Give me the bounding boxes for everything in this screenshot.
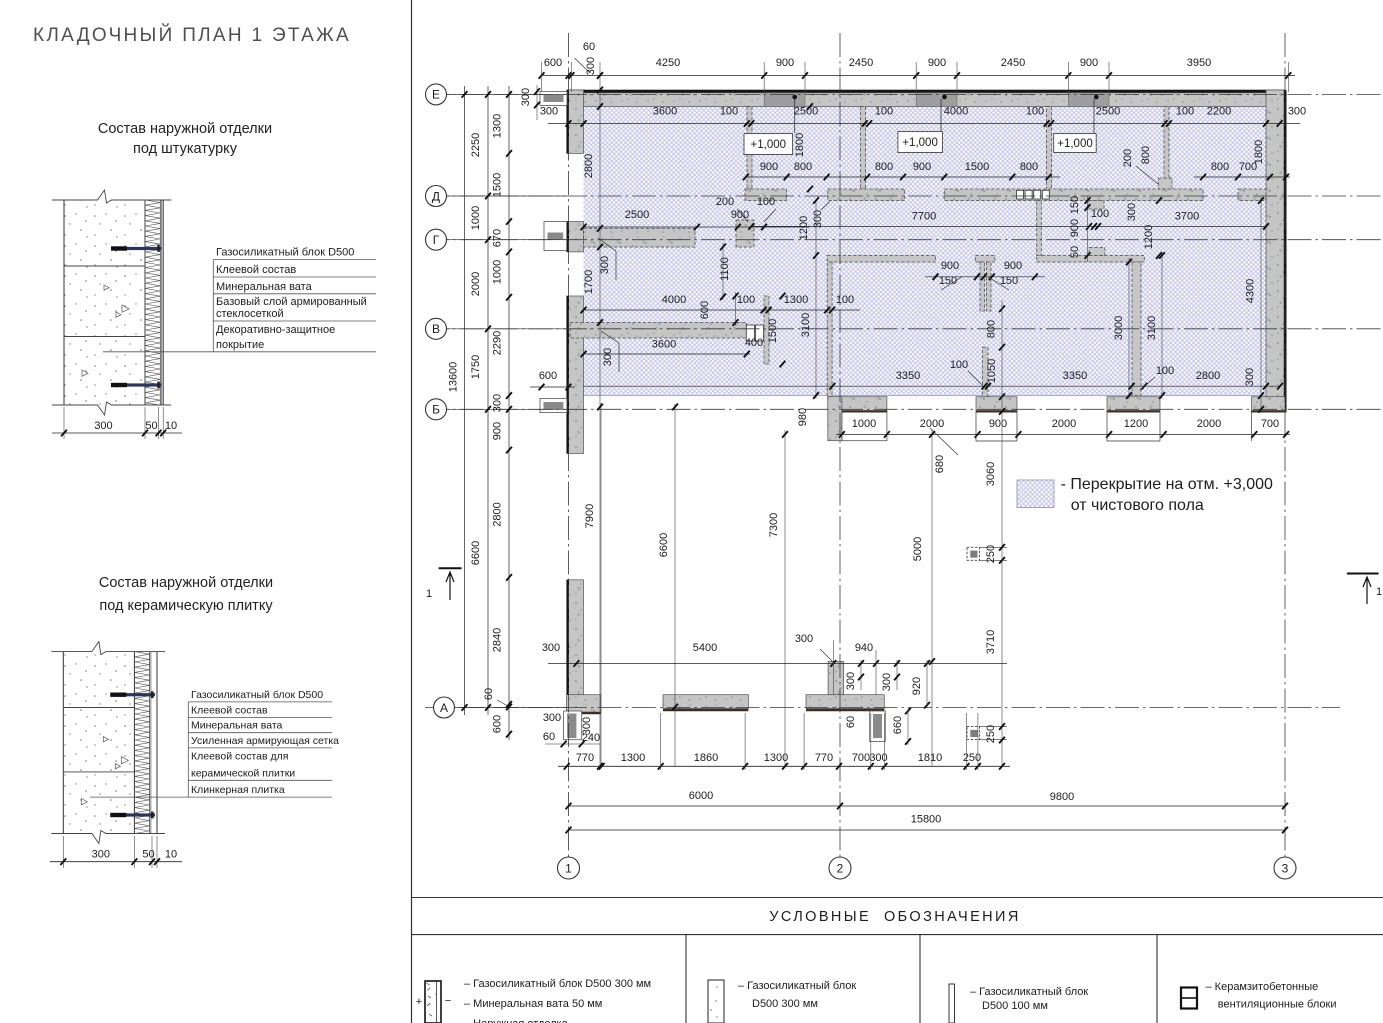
svg-text:под керамическую плитку: под керамическую плитку (99, 598, 273, 614)
svg-text:– Керамзитобетонные: – Керамзитобетонные (1206, 981, 1319, 993)
svg-text:– Газосиликатный блок: – Газосиликатный блок (970, 986, 1088, 998)
svg-text:КЛАДОЧНЫЙ ПЛАН 1 ЭТАЖА: КЛАДОЧНЫЙ ПЛАН 1 ЭТАЖА (33, 24, 351, 46)
svg-text:1: 1 (426, 588, 432, 600)
svg-text:2000: 2000 (470, 272, 482, 296)
svg-text:Декоративно-защитное: Декоративно-защитное (216, 324, 335, 336)
svg-text:1200: 1200 (798, 216, 810, 240)
svg-text:50: 50 (1069, 246, 1081, 258)
svg-text:800: 800 (986, 320, 998, 338)
svg-text:1700: 1700 (583, 270, 595, 294)
svg-text:Клеевой состав: Клеевой состав (191, 705, 268, 717)
svg-text:Е: Е (432, 88, 440, 102)
svg-text:1050: 1050 (986, 359, 998, 383)
svg-text:900: 900 (731, 209, 749, 221)
svg-text:1: 1 (1376, 586, 1382, 598)
svg-text:Г: Г (433, 233, 440, 247)
svg-text:300: 300 (795, 633, 813, 645)
svg-text:Б: Б (432, 403, 440, 417)
svg-text:5000: 5000 (912, 537, 924, 561)
svg-text:900: 900 (989, 418, 1007, 430)
svg-text:60: 60 (483, 688, 495, 700)
svg-text:Состав наружной отделки: Состав наружной отделки (98, 121, 272, 137)
svg-text:7300: 7300 (768, 513, 780, 537)
svg-text:600: 600 (544, 57, 562, 69)
svg-text:100: 100 (757, 196, 775, 208)
svg-text:1000: 1000 (852, 418, 876, 430)
svg-text:900: 900 (492, 422, 504, 440)
svg-text:7900: 7900 (584, 504, 596, 528)
svg-text:3600: 3600 (653, 106, 677, 118)
svg-text:2800: 2800 (583, 154, 595, 178)
svg-text:3: 3 (1282, 861, 1289, 875)
svg-text:D500 100 мм: D500 100 мм (982, 1000, 1048, 1012)
svg-text:1200: 1200 (1124, 418, 1148, 430)
svg-text:600: 600 (699, 301, 711, 319)
svg-text:100: 100 (720, 106, 738, 118)
svg-text:1800: 1800 (1253, 140, 1265, 164)
svg-text:вентиляционные блоки: вентиляционные блоки (1218, 999, 1337, 1011)
svg-text:9800: 9800 (1050, 791, 1074, 803)
svg-text:1500: 1500 (965, 161, 989, 173)
svg-text:D500 300 мм: D500 300 мм (752, 998, 818, 1010)
svg-text:1300: 1300 (784, 294, 808, 306)
svg-text:60: 60 (543, 731, 555, 743)
svg-text:1100: 1100 (719, 257, 731, 281)
svg-text:3350: 3350 (896, 370, 920, 382)
svg-text:1750: 1750 (470, 355, 482, 379)
svg-text:2450: 2450 (1001, 57, 1025, 69)
svg-text:700: 700 (852, 752, 870, 764)
svg-text:250: 250 (985, 725, 997, 743)
svg-text:100: 100 (1026, 106, 1044, 118)
svg-text:250: 250 (985, 545, 997, 563)
svg-text:50: 50 (142, 849, 154, 861)
svg-text:300: 300 (812, 210, 824, 228)
svg-text:240: 240 (582, 732, 600, 744)
svg-text:2: 2 (837, 861, 844, 875)
svg-text:стеклосеткой: стеклосеткой (216, 308, 284, 320)
svg-text:1300: 1300 (492, 114, 504, 138)
svg-text:2250: 2250 (470, 133, 482, 157)
svg-text:3350: 3350 (1063, 370, 1087, 382)
svg-text:под штукатурку: под штукатурку (133, 141, 238, 157)
svg-text:900: 900 (928, 57, 946, 69)
svg-text:1500: 1500 (492, 173, 504, 197)
svg-text:7700: 7700 (912, 211, 936, 223)
svg-text:4000: 4000 (662, 294, 686, 306)
svg-text:800: 800 (794, 161, 812, 173)
svg-text:керамической плитки: керамической плитки (191, 767, 295, 779)
svg-text:300: 300 (599, 256, 611, 274)
svg-text:800: 800 (1211, 161, 1229, 173)
svg-text:100: 100 (836, 294, 854, 306)
svg-text:4300: 4300 (1245, 279, 1257, 303)
svg-text:300: 300 (1288, 106, 1306, 118)
svg-text:6600: 6600 (658, 533, 670, 557)
svg-text:3060: 3060 (985, 462, 997, 486)
svg-text:2500: 2500 (794, 106, 818, 118)
svg-text:+1,000: +1,000 (902, 137, 938, 149)
svg-text:Состав наружной отделки: Состав наружной отделки (99, 575, 273, 591)
svg-text:Газосиликатный блок D500: Газосиликатный блок D500 (191, 689, 323, 701)
svg-text:940: 940 (855, 642, 873, 654)
svg-text:300: 300 (585, 57, 597, 75)
svg-text:200: 200 (1122, 149, 1134, 167)
svg-text:300: 300 (1126, 203, 1138, 221)
svg-text:60: 60 (845, 716, 857, 728)
svg-text:100: 100 (1091, 208, 1109, 220)
svg-text:+1,000: +1,000 (751, 139, 787, 151)
svg-text:900: 900 (776, 57, 794, 69)
svg-text:10: 10 (165, 420, 177, 432)
svg-text:3000: 3000 (1113, 316, 1125, 340)
svg-text:1000: 1000 (470, 206, 482, 230)
svg-text:700: 700 (1261, 418, 1279, 430)
svg-text:2000: 2000 (1052, 418, 1076, 430)
svg-text:60: 60 (583, 41, 595, 53)
svg-text:300: 300 (492, 394, 504, 412)
svg-text:100: 100 (1156, 365, 1174, 377)
svg-text:920: 920 (911, 677, 923, 695)
svg-text:200: 200 (716, 196, 734, 208)
svg-text:2500: 2500 (1096, 106, 1120, 118)
svg-text:300: 300 (540, 106, 558, 118)
svg-text:300: 300 (602, 348, 614, 366)
svg-text:800: 800 (1020, 161, 1038, 173)
svg-text:3100: 3100 (1146, 316, 1158, 340)
svg-text:600: 600 (492, 715, 504, 733)
svg-text:Клеевой состав: Клеевой состав (216, 264, 296, 276)
svg-text:А: А (440, 701, 448, 715)
svg-text:15800: 15800 (911, 814, 942, 826)
svg-text:300: 300 (94, 420, 112, 432)
svg-text:1200: 1200 (1143, 225, 1155, 249)
svg-text:4250: 4250 (656, 57, 680, 69)
svg-text:100: 100 (875, 106, 893, 118)
svg-text:900: 900 (1080, 57, 1098, 69)
svg-text:800: 800 (1140, 146, 1152, 164)
svg-text:300: 300 (520, 88, 532, 106)
svg-text:2840: 2840 (492, 628, 504, 652)
svg-text:13600: 13600 (448, 362, 460, 393)
svg-text:5400: 5400 (693, 642, 717, 654)
svg-text:900: 900 (1004, 260, 1022, 272)
svg-text:– Газосиликатный блок: – Газосиликатный блок (738, 980, 856, 992)
svg-text:770: 770 (815, 752, 833, 764)
svg-text:300: 300 (881, 673, 893, 691)
svg-text:150: 150 (1069, 196, 1081, 214)
svg-text:900: 900 (941, 260, 959, 272)
svg-text:10: 10 (165, 849, 177, 861)
svg-text:1300: 1300 (621, 752, 645, 764)
svg-text:1800: 1800 (794, 133, 806, 157)
svg-text:Базовый слой армированный: Базовый слой армированный (216, 296, 367, 308)
svg-text:300: 300 (543, 712, 561, 724)
svg-text:250: 250 (963, 752, 981, 764)
svg-text:Минеральная вата: Минеральная вата (216, 281, 313, 293)
svg-text:300: 300 (92, 849, 110, 861)
svg-text:2500: 2500 (625, 209, 649, 221)
svg-text:1810: 1810 (918, 752, 942, 764)
svg-text:660: 660 (892, 716, 904, 734)
svg-text:покрытие: покрытие (216, 339, 264, 351)
svg-text:– Газосиликатный блок D500 300: – Газосиликатный блок D500 300 мм (464, 978, 651, 990)
svg-text:900: 900 (1069, 219, 1081, 237)
svg-text:1860: 1860 (694, 752, 718, 764)
svg-text:УСЛОВНЫЕ ОБОЗНАЧЕНИЯ: УСЛОВНЫЕ ОБОЗНАЧЕНИЯ (769, 909, 1020, 925)
svg-text:4000: 4000 (944, 106, 968, 118)
svg-text:1: 1 (565, 861, 572, 875)
svg-text:+1,000: +1,000 (1057, 138, 1093, 150)
svg-text:2000: 2000 (920, 418, 944, 430)
svg-text:3950: 3950 (1187, 57, 1211, 69)
svg-text:3600: 3600 (652, 339, 676, 351)
svg-text:– Минеральная вата 50 мм: – Минеральная вата 50 мм (464, 998, 602, 1010)
svg-text:6600: 6600 (470, 541, 482, 565)
svg-text:Газосиликатный блок D500: Газосиликатный блок D500 (216, 247, 354, 259)
svg-text:300: 300 (1244, 368, 1256, 386)
svg-text:50: 50 (145, 420, 157, 432)
svg-text:2000: 2000 (1197, 418, 1221, 430)
svg-text:100: 100 (737, 294, 755, 306)
svg-text:100: 100 (1176, 106, 1194, 118)
svg-text:2800: 2800 (492, 502, 504, 526)
svg-text:2200: 2200 (1207, 106, 1231, 118)
svg-text:3700: 3700 (1175, 211, 1199, 223)
svg-text:300: 300 (845, 672, 857, 690)
svg-text:300: 300 (869, 752, 887, 764)
svg-text:6000: 6000 (689, 790, 713, 802)
svg-text:400: 400 (745, 337, 763, 349)
svg-text:770: 770 (576, 752, 594, 764)
svg-text:3710: 3710 (985, 630, 997, 654)
svg-text:Усиленная армирующая сетка: Усиленная армирующая сетка (191, 735, 339, 747)
svg-text:670: 670 (492, 229, 504, 247)
svg-text:+: + (416, 996, 422, 1008)
svg-text:Минеральная вата: Минеральная вата (191, 720, 283, 732)
svg-text:680: 680 (934, 455, 946, 473)
svg-text:1500: 1500 (767, 319, 779, 343)
svg-text:300: 300 (542, 642, 560, 654)
svg-text:980: 980 (797, 408, 809, 426)
svg-text:900: 900 (760, 161, 778, 173)
svg-text:от чистового пола: от чистового пола (1071, 497, 1204, 514)
svg-text:2450: 2450 (849, 57, 873, 69)
svg-text:Д: Д (432, 189, 440, 203)
svg-text:– Наружная отделка: – Наружная отделка (464, 1018, 569, 1023)
svg-text:600: 600 (539, 370, 557, 382)
svg-text:−: − (445, 995, 451, 1007)
svg-text:800: 800 (875, 161, 893, 173)
svg-text:1000: 1000 (492, 260, 504, 284)
svg-text:100: 100 (950, 359, 968, 371)
svg-text:Клеевой состав для: Клеевой состав для (191, 751, 288, 763)
svg-text:900: 900 (913, 161, 931, 173)
svg-text:2800: 2800 (1196, 370, 1220, 382)
svg-text:В: В (432, 322, 440, 336)
svg-text:1300: 1300 (764, 752, 788, 764)
svg-text:Клинкерная плитка: Клинкерная плитка (191, 784, 285, 796)
svg-text:- Перекрытие на отм. +3,000: - Перекрытие на отм. +3,000 (1061, 476, 1273, 493)
svg-text:3100: 3100 (800, 313, 812, 337)
svg-text:2290: 2290 (492, 331, 504, 355)
